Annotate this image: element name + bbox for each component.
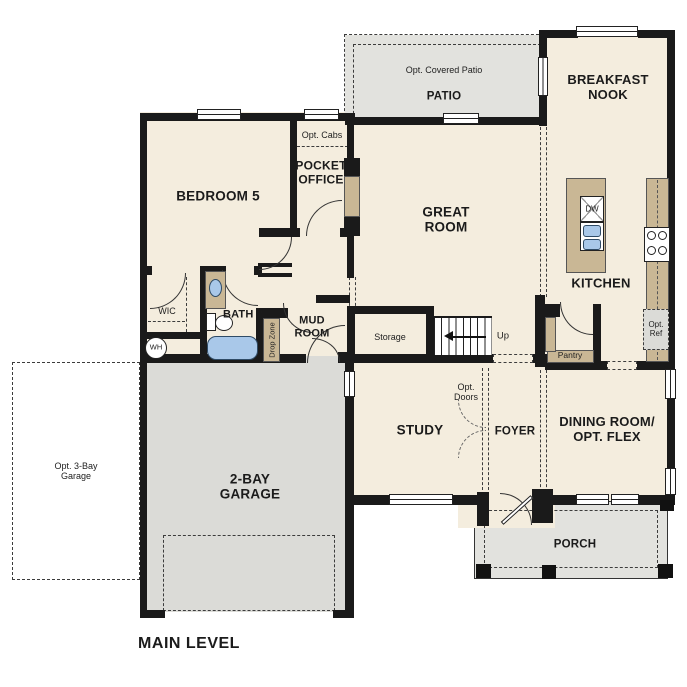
room-label-patio: PATIO (427, 90, 461, 103)
room-label-pocket-office: POCKET OFFICE (289, 159, 353, 186)
window-study-west (344, 371, 355, 397)
wall-storage-north (347, 306, 434, 314)
stairs-arrow-head (444, 331, 453, 341)
patio-inner-dashed-left (353, 44, 354, 119)
porch-post-ne (660, 500, 674, 511)
wic-shelf-dashed-v (186, 277, 187, 332)
wall-nook-north-right (638, 30, 675, 38)
room-label-great-room: GREAT ROOM (414, 205, 478, 236)
stairs-arrow-line (452, 336, 486, 338)
greatroom-kitchen-break-1 (540, 127, 541, 297)
room-label-study: STUDY (397, 422, 444, 437)
wall-study-south-left (345, 495, 391, 505)
patio-slider-greatroom (443, 113, 479, 124)
wall-study-north (345, 354, 493, 363)
wall-greatroom-west-upper (347, 125, 354, 160)
wall-study-south-right (453, 495, 478, 505)
wall-west (140, 113, 147, 618)
wall-nook-west-upper (539, 30, 547, 58)
label-opt-ref: Opt. Ref (644, 320, 668, 338)
room-label-mud-room: MUD ROOM (290, 314, 334, 339)
room-label-pantry: Pantry (558, 351, 583, 361)
wic-shelf-dashed-h (148, 321, 185, 322)
window-dining-south-right (611, 494, 639, 505)
foyer-dining-wall-1 (540, 370, 541, 497)
greatroom-kitchen-break-2 (546, 127, 547, 297)
window-dining-east-upper (665, 369, 676, 399)
label-dishwasher: DW (585, 204, 598, 213)
window-pocket-office (304, 109, 339, 120)
room-label-breakfast-nook: BREAKFAST NOOK (558, 73, 658, 103)
wall-vestibule-left (477, 492, 489, 526)
label-opt-cabs: Opt. Cabs (302, 130, 343, 140)
room-label-dining: DINING ROOM/ OPT. FLEX (548, 415, 666, 445)
page-title: MAIN LEVEL (138, 635, 240, 653)
window-dining-south-left (576, 494, 609, 505)
wall-mud-north (316, 295, 350, 303)
burner-2 (658, 231, 667, 240)
floorplan-main-level: BEDROOM 5 POCKET OFFICE Opt. Cabs GREAT … (0, 0, 687, 687)
fireplace-cap-bottom (344, 215, 360, 236)
garage-door-dashed (163, 535, 335, 611)
label-water-heater: WH (150, 344, 163, 353)
window-breakfast-nook (576, 26, 638, 37)
label-stairs-up: Up (497, 332, 509, 343)
vanity-sink (209, 279, 222, 297)
window-bedroom5 (197, 109, 241, 120)
foyer-dining-wall-2 (546, 370, 547, 497)
room-label-2bay-garage: 2-BAY GARAGE (209, 472, 291, 503)
wall-hall-top (259, 228, 300, 237)
burner-1 (647, 231, 656, 240)
study-foyer-wall-2 (488, 368, 489, 495)
kitchen-sink-basin-bottom (583, 239, 601, 250)
window-dining-east-lower (665, 468, 676, 495)
porch-post-s-mid (542, 565, 556, 579)
opt-cabs-dashed (297, 146, 348, 147)
wall-greatroom-west-lower (347, 235, 354, 278)
porch-post-se (658, 564, 673, 578)
stairs-foyer-opening (493, 354, 533, 363)
porch-post-sw (476, 564, 491, 578)
wall-pantry-corner (543, 304, 560, 317)
room-label-porch: PORCH (554, 538, 597, 551)
room-label-storage: Storage (374, 332, 406, 342)
label-drop-zone: Drop Zone (268, 322, 277, 357)
wall-garage-south-left (140, 610, 165, 618)
kitchen-sink-basin-top (583, 225, 601, 237)
burner-4 (658, 246, 667, 255)
label-opt-doors: Opt. Doors (449, 382, 483, 403)
patio-inner-dashed-top (353, 44, 541, 45)
patio-outline-dashed (344, 34, 544, 121)
room-label-wic: WIC (158, 306, 176, 316)
label-opt-covered-patio: Opt. Covered Patio (406, 65, 483, 75)
room-label-bedroom5: BEDROOM 5 (176, 188, 260, 203)
window-study-south (389, 494, 453, 505)
wall-vestibule-right (532, 489, 553, 523)
pantry-shelf-left (545, 317, 556, 352)
patio-slider-nook (538, 57, 548, 96)
cased-opening-bottom (258, 273, 292, 277)
bathtub (207, 336, 258, 360)
wall-nook-west-lower (539, 95, 547, 126)
room-label-kitchen: KITCHEN (571, 277, 630, 292)
label-opt-3bay-garage: Opt. 3-Bay Garage (41, 461, 111, 482)
wall-pantry-east (593, 304, 601, 364)
room-label-bath2: BATH 2 (222, 309, 264, 322)
burner-3 (647, 246, 656, 255)
room-label-foyer: FOYER (495, 425, 536, 438)
kitchen-dining-opening (607, 361, 637, 370)
